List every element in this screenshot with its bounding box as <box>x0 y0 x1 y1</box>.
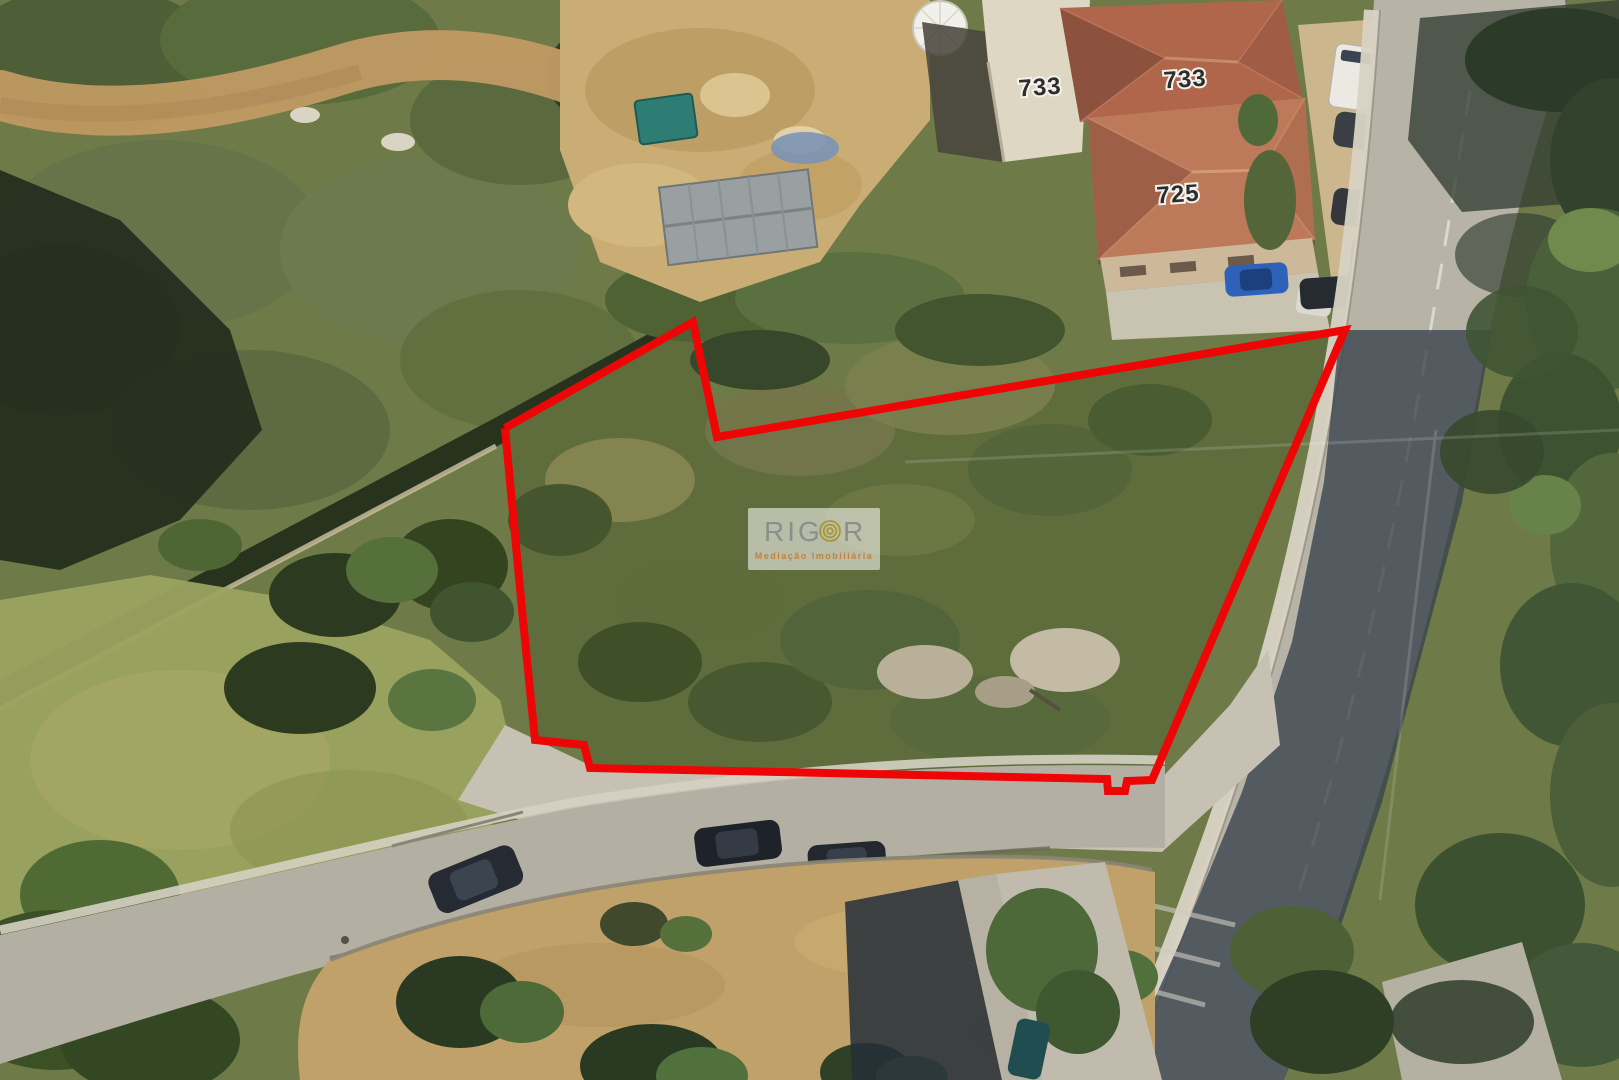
watermark: RIG R Mediação Imobiliária <box>748 508 880 570</box>
garden-bushes <box>1238 94 1278 146</box>
rubble <box>290 107 320 123</box>
house-number-label: 733 <box>1018 73 1063 103</box>
watermark-brand-suffix: R <box>843 516 866 547</box>
watermark-tagline: Mediação Imobiliária <box>755 551 874 561</box>
house-number-label: 733 <box>1163 65 1208 95</box>
rubble <box>381 133 415 151</box>
tree <box>660 916 712 952</box>
aerial-photo: 733 733 725 RIG R Mediação Imobiliária <box>0 0 1619 1080</box>
rock-outcrop <box>877 645 973 699</box>
rock-outcrop <box>975 676 1035 708</box>
blue-car <box>1224 262 1289 297</box>
watermark-brand-prefix: RIG <box>764 516 823 547</box>
tree <box>1036 970 1120 1054</box>
tree <box>388 669 476 731</box>
garden-bushes <box>1244 150 1296 250</box>
house-number-label: 725 <box>1156 180 1201 210</box>
tree <box>346 537 438 603</box>
blue-tarp <box>771 132 839 164</box>
tree-shadow <box>224 642 376 734</box>
tree <box>480 981 564 1043</box>
teal-dumpster <box>634 93 698 145</box>
tree-shadow <box>600 902 668 946</box>
